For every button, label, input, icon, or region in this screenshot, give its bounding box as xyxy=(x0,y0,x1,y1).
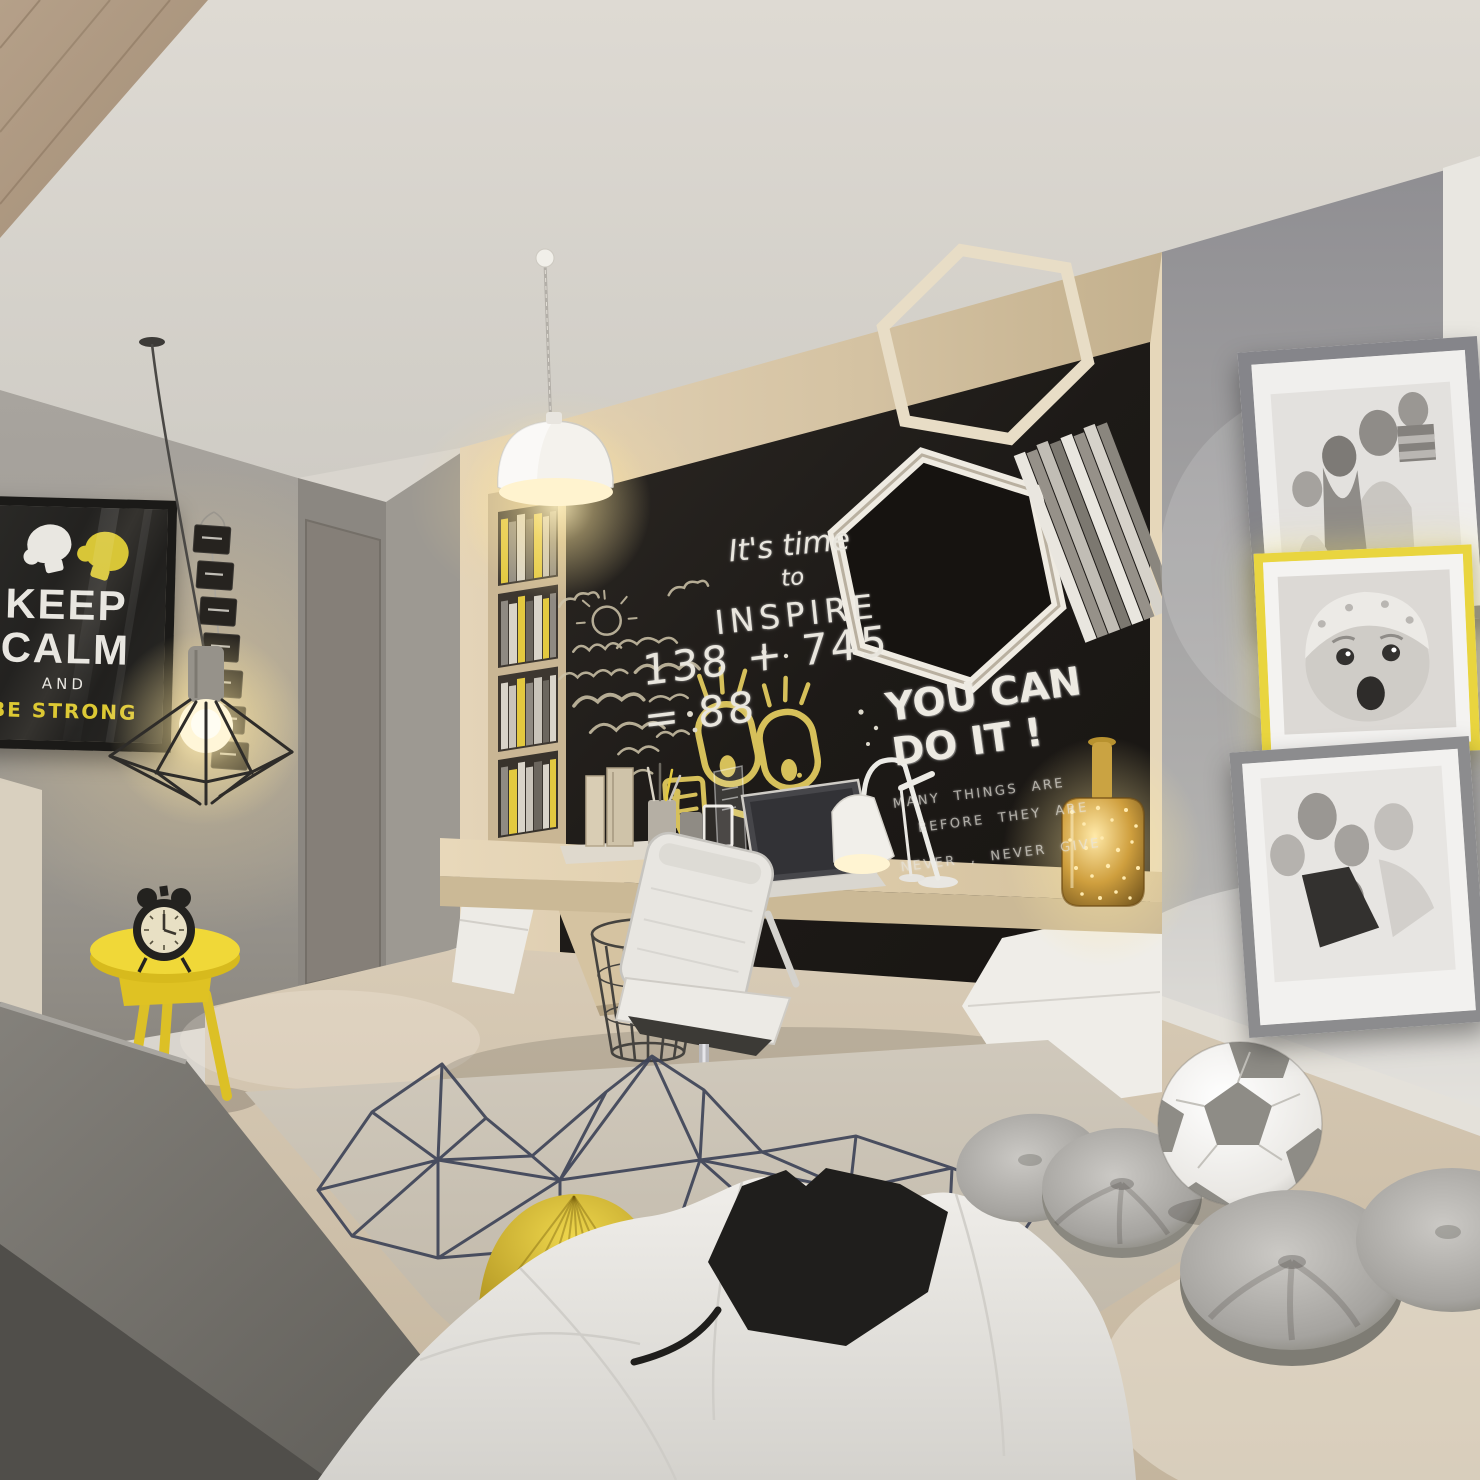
door xyxy=(306,520,380,984)
room-render: KEEP CALM AND BE STRONG It's time to INS… xyxy=(0,0,1480,1480)
scene-layer xyxy=(0,0,1480,1480)
keep-calm-poster: KEEP CALM AND BE STRONG xyxy=(0,495,177,753)
photo-frame-bottom xyxy=(1229,736,1480,1038)
family-photo-5 xyxy=(1242,749,1476,1025)
baby-photo xyxy=(1263,554,1471,751)
photo-frame-middle xyxy=(1254,544,1480,759)
